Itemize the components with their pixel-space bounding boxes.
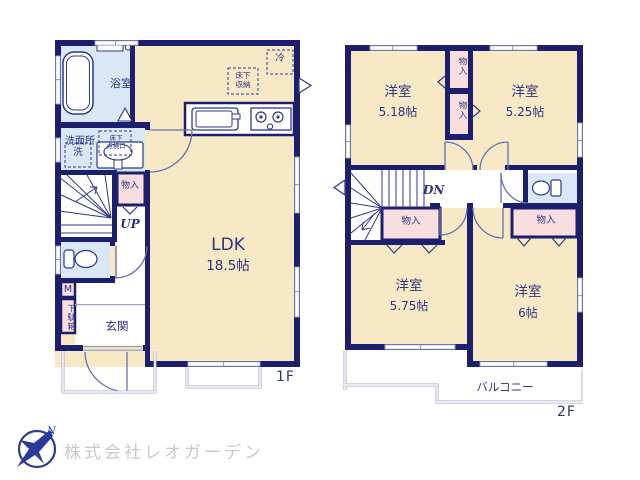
room-label-ldk: LDK (190, 235, 266, 256)
room-label-bedroom1: 洋室 (358, 84, 438, 101)
closet-label-1f: 物入 (117, 181, 143, 192)
label-laundry: 洗 (65, 147, 91, 159)
room-size-ldk: 18.5帖 (190, 258, 266, 275)
room-label-bedroom4: 洋室 (488, 284, 568, 301)
stair-label-up: UP (117, 217, 143, 232)
company-name: 株式会社レオガーデン (64, 438, 264, 463)
closet-label-2f-3: 物入 (384, 216, 438, 228)
label-fridge: 冷 (267, 53, 293, 65)
floor-plan-page: 浴室 洗面所 床下点検口 洗 物入 UP M 下駄箱 玄関 LDK 18.5帖 … (0, 0, 640, 480)
company-logo-icon (12, 422, 64, 474)
closet-label-2f-2: 物入 (450, 101, 467, 120)
compass-n-label: N (47, 426, 56, 437)
label-underfloor-hatch: 床下点検口 (100, 134, 132, 150)
room-label-entrance: 玄関 (98, 319, 136, 333)
room-label-bedroom3: 洋室 (369, 278, 449, 295)
room-label-bedroom2: 洋室 (485, 84, 565, 101)
room-size-bedroom2: 5.25帖 (485, 105, 565, 120)
floor-label-1f: 1F (276, 369, 295, 387)
closet-label-2f-4: 物入 (516, 215, 576, 227)
label-shoebox: 下駄箱 (62, 300, 76, 334)
floor-label-2f: 2F (557, 404, 576, 422)
closet-label-2f-1: 物入 (450, 57, 467, 76)
room-size-bedroom3: 5.75帖 (369, 299, 449, 314)
label-balcony: バルコニー (455, 380, 555, 394)
room-size-bedroom1: 5.18帖 (358, 105, 438, 120)
label-meter: M (59, 284, 77, 296)
stair-label-dn: DN (423, 183, 444, 198)
label-underfloor-storage: 床下収納 (228, 71, 258, 90)
room-label-bath: 浴室 (103, 77, 139, 91)
floor-plan-1f (55, 40, 313, 400)
room-size-bedroom4: 6帖 (488, 306, 568, 321)
